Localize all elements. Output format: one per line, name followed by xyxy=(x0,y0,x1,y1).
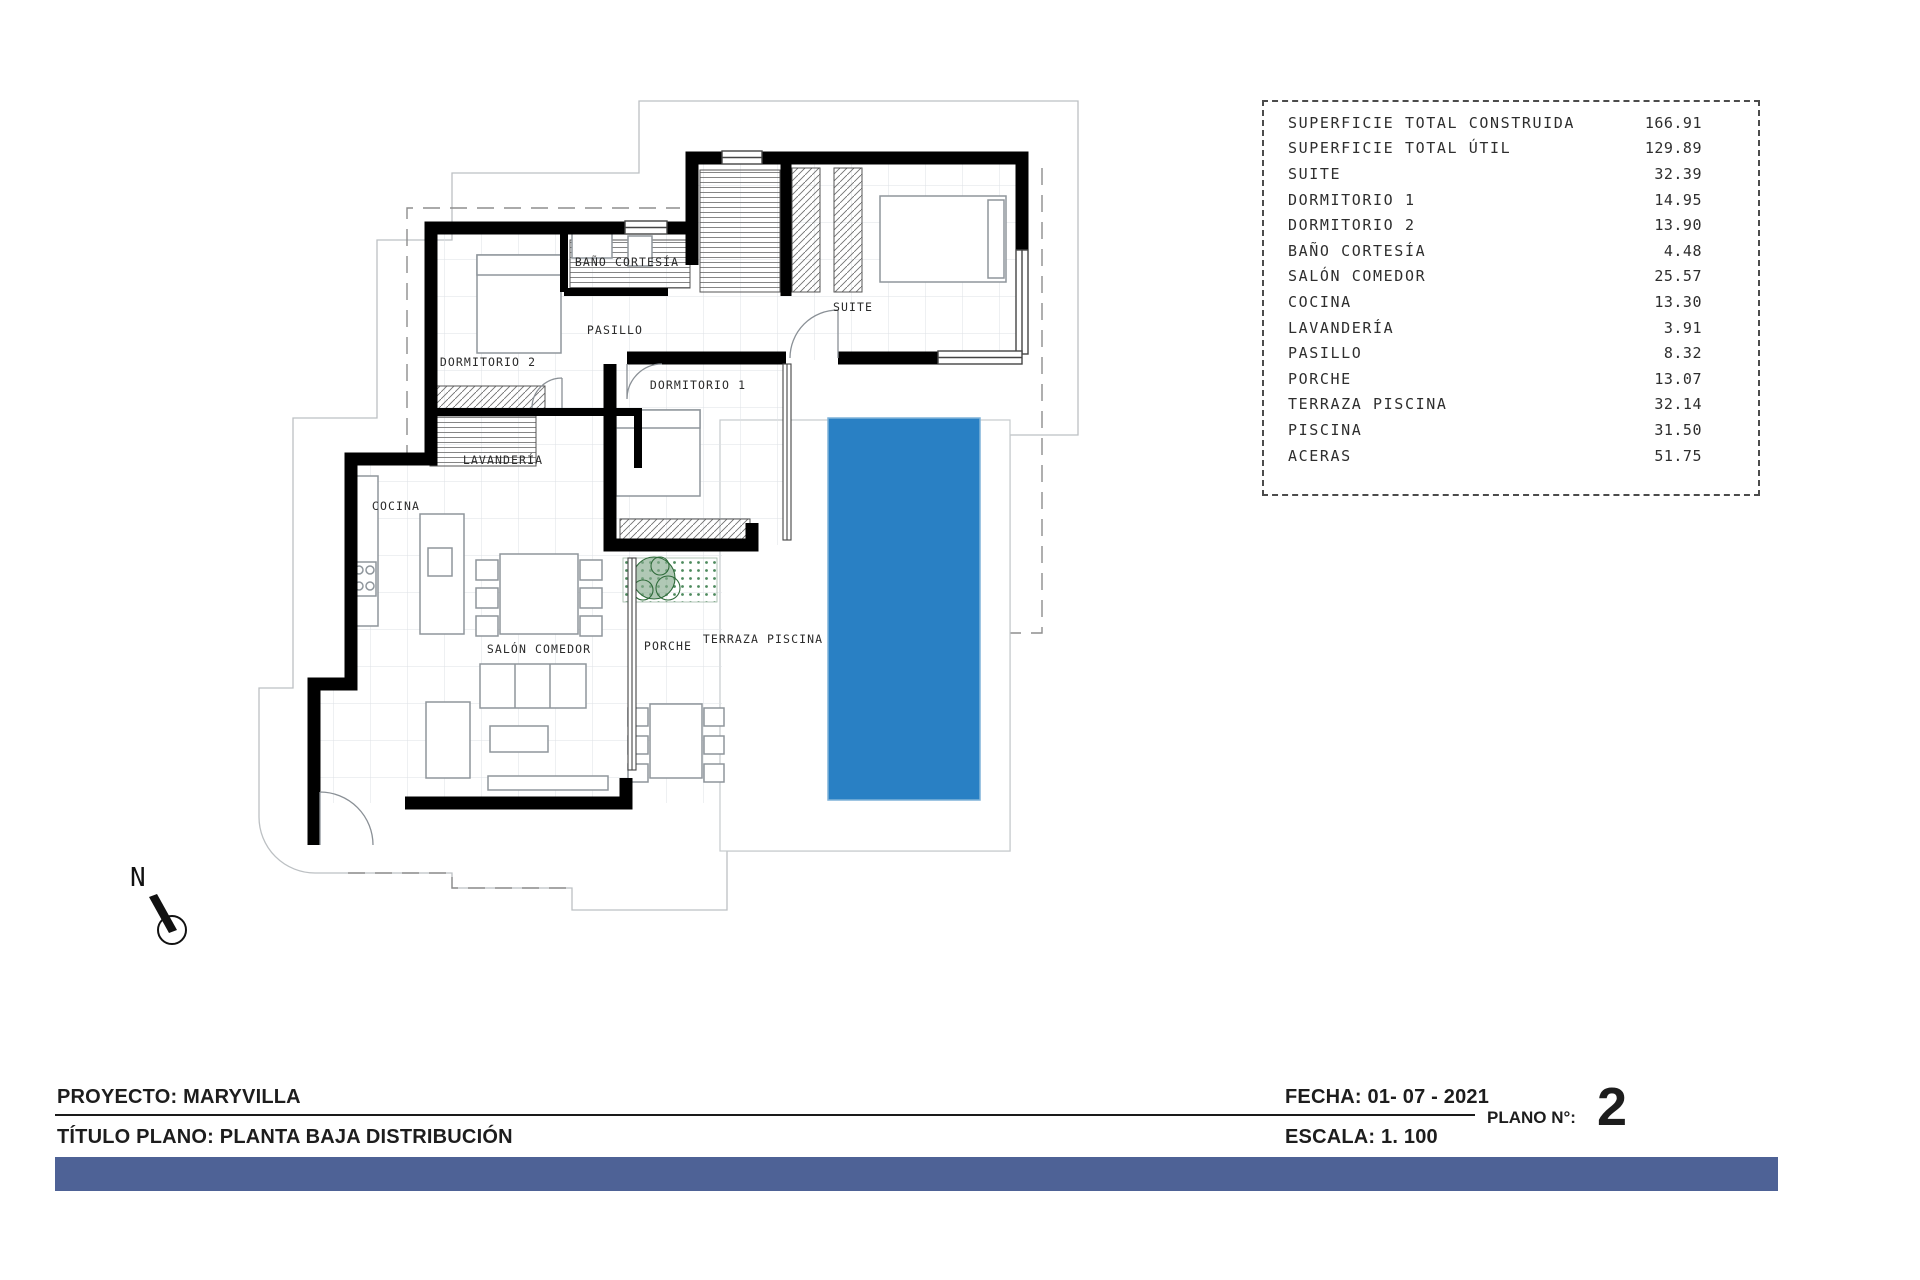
row-value: 14.95 xyxy=(1654,191,1702,209)
table-row: DORMITORIO 213.90 xyxy=(1264,212,1758,238)
row-label: TERRAZA PISCINA xyxy=(1288,395,1447,413)
row-label: SALÓN COMEDOR xyxy=(1288,267,1426,285)
table-row: SUPERFICIE TOTAL CONSTRUIDA166.91 xyxy=(1264,110,1758,136)
tree-planter xyxy=(623,557,717,602)
table-row: TERRAZA PISCINA32.14 xyxy=(1264,392,1758,418)
plan-number: 2 xyxy=(1597,1080,1627,1134)
room-label-pasillo: PASILLO xyxy=(587,323,643,337)
row-label: ACERAS xyxy=(1288,447,1352,465)
row-label: DORMITORIO 2 xyxy=(1288,216,1416,234)
row-value: 51.75 xyxy=(1654,447,1702,465)
row-value: 13.30 xyxy=(1654,293,1702,311)
row-value: 32.14 xyxy=(1654,395,1702,413)
project-title: PROYECTO: MARYVILLA xyxy=(57,1086,301,1109)
room-label-porche: PORCHE xyxy=(644,639,692,653)
scale-field: ESCALA: 1. 100 xyxy=(1285,1126,1438,1149)
room-label-lavanderia: LAVANDERÍA xyxy=(463,452,543,467)
room-label-terraza-piscina: TERRAZA PISCINA xyxy=(703,632,823,646)
room-label-salon-comedor: SALÓN COMEDOR xyxy=(487,641,591,656)
table-row: SALÓN COMEDOR25.57 xyxy=(1264,264,1758,290)
title-block-divider xyxy=(55,1114,1475,1116)
row-label: SUITE xyxy=(1288,165,1341,183)
table-row: PORCHE13.07 xyxy=(1264,366,1758,392)
table-row: PISCINA31.50 xyxy=(1264,417,1758,443)
row-label: SUPERFICIE TOTAL ÚTIL xyxy=(1288,139,1511,157)
row-value: 129.89 xyxy=(1645,139,1702,157)
table-row: BAÑO CORTESÍA4.48 xyxy=(1264,238,1758,264)
table-row: PASILLO8.32 xyxy=(1264,340,1758,366)
row-value: 31.50 xyxy=(1654,421,1702,439)
surface-area-table: SUPERFICIE TOTAL CONSTRUIDA166.91 SUPERF… xyxy=(1262,100,1760,496)
table-row: LAVANDERÍA3.91 xyxy=(1264,315,1758,341)
table-row: SUPERFICIE TOTAL ÚTIL129.89 xyxy=(1264,136,1758,162)
table-row: ACERAS51.75 xyxy=(1264,443,1758,469)
row-value: 13.07 xyxy=(1654,370,1702,388)
room-label-cocina: COCINA xyxy=(372,499,420,513)
plan-number-label: PLANO N°: xyxy=(1487,1108,1576,1128)
row-label: SUPERFICIE TOTAL CONSTRUIDA xyxy=(1288,114,1575,132)
row-label: COCINA xyxy=(1288,293,1352,311)
table-row: SUITE32.39 xyxy=(1264,161,1758,187)
row-value: 8.32 xyxy=(1664,344,1702,362)
row-label: DORMITORIO 1 xyxy=(1288,191,1416,209)
pool xyxy=(828,418,980,800)
room-label-dormitorio-2: DORMITORIO 2 xyxy=(440,355,536,369)
room-label-suite: SUITE xyxy=(833,300,873,314)
row-value: 25.57 xyxy=(1654,267,1702,285)
row-value: 4.48 xyxy=(1664,242,1702,260)
row-label: PORCHE xyxy=(1288,370,1352,388)
room-label-bano-cortesia: BAÑO CORTESÍA xyxy=(575,254,679,269)
row-label: PISCINA xyxy=(1288,421,1362,439)
table-row: COCINA13.30 xyxy=(1264,289,1758,315)
row-value: 166.91 xyxy=(1645,114,1702,132)
row-value: 13.90 xyxy=(1654,216,1702,234)
north-label: N xyxy=(130,863,146,893)
compass-needle-icon xyxy=(149,894,177,933)
floor-plan-sheet: { "summary_table": { "rows": [ {"label":… xyxy=(0,0,1920,1280)
row-label: LAVANDERÍA xyxy=(1288,319,1394,337)
room-label-dormitorio-1: DORMITORIO 1 xyxy=(650,378,746,392)
row-label: BAÑO CORTESÍA xyxy=(1288,242,1426,260)
north-indicator: N xyxy=(130,863,186,944)
plan-title: TÍTULO PLANO: PLANTA BAJA DISTRIBUCIÓN xyxy=(57,1126,513,1149)
row-value: 32.39 xyxy=(1654,165,1702,183)
accent-bar xyxy=(55,1157,1778,1191)
row-value: 3.91 xyxy=(1664,319,1702,337)
table-row: DORMITORIO 114.95 xyxy=(1264,187,1758,213)
date-field: FECHA: 01- 07 - 2021 xyxy=(1285,1086,1489,1109)
row-label: PASILLO xyxy=(1288,344,1362,362)
